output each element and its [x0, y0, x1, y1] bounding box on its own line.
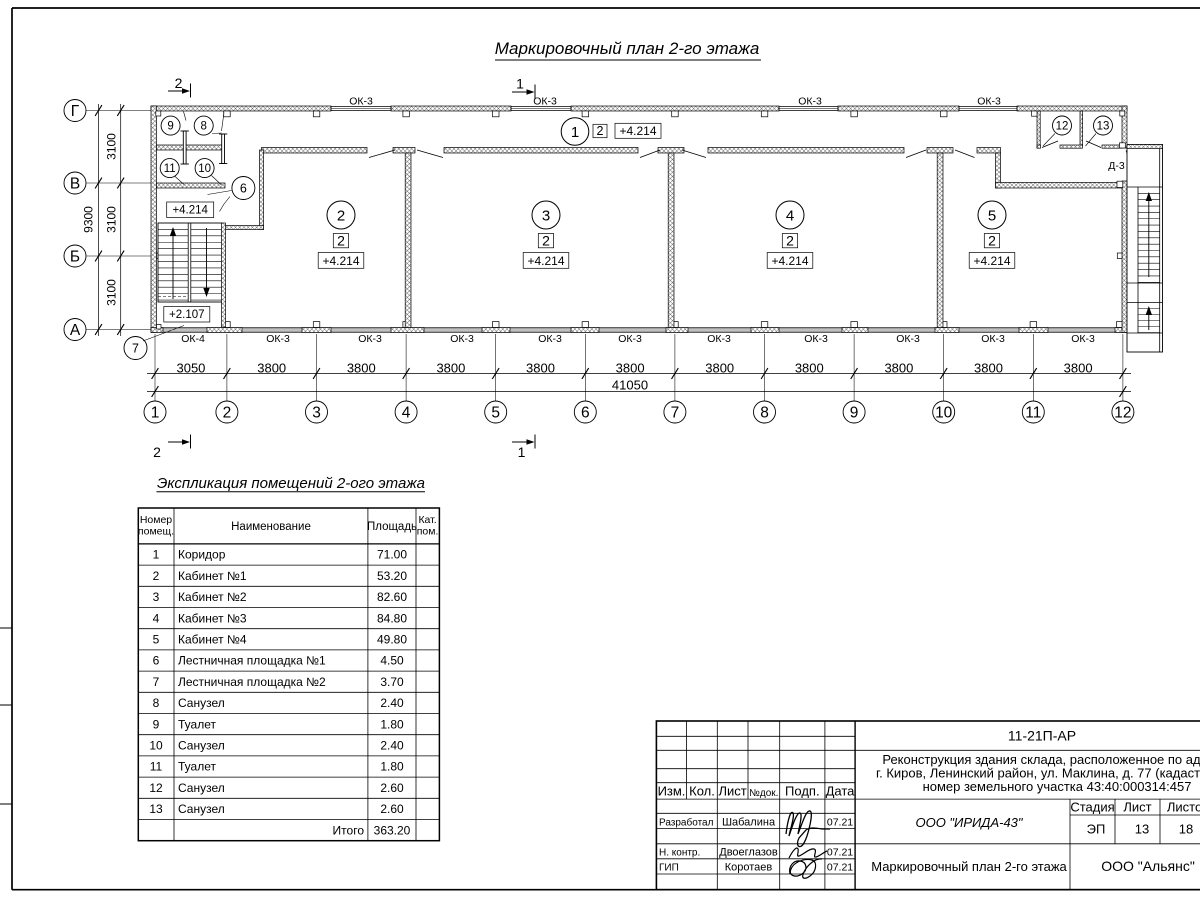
svg-text:ОК-3: ОК-3	[804, 333, 828, 345]
svg-text:1: 1	[516, 76, 524, 92]
svg-text:ОК-3: ОК-3	[533, 96, 557, 108]
svg-text:82.60: 82.60	[377, 590, 407, 604]
svg-text:84.80: 84.80	[377, 611, 407, 625]
svg-text:Номер: Номер	[140, 514, 172, 526]
svg-text:07.21: 07.21	[827, 861, 853, 873]
svg-text:Разработал: Разработал	[659, 817, 714, 829]
svg-text:07.21: 07.21	[827, 817, 853, 829]
svg-text:Кабинет №4: Кабинет №4	[178, 633, 247, 647]
svg-text:8: 8	[760, 404, 769, 421]
svg-text:Дата: Дата	[826, 783, 856, 798]
svg-text:4: 4	[786, 207, 794, 224]
svg-text:Санузел: Санузел	[178, 802, 225, 816]
svg-text:8: 8	[200, 121, 206, 133]
svg-text:3800: 3800	[705, 360, 734, 375]
svg-text:Итого: Итого	[333, 823, 365, 837]
svg-text:3800: 3800	[884, 360, 913, 375]
svg-text:Кат.: Кат.	[418, 514, 436, 526]
svg-text:+4.214: +4.214	[973, 254, 1010, 268]
svg-text:Туалет: Туалет	[178, 717, 216, 731]
svg-text:13: 13	[1097, 121, 1110, 133]
svg-text:+4.214: +4.214	[322, 254, 359, 268]
svg-text:Стадия: Стадия	[1070, 800, 1114, 815]
svg-text:ОК-3: ОК-3	[538, 333, 562, 345]
svg-text:В: В	[70, 175, 80, 192]
svg-text:ЭП: ЭП	[1087, 822, 1106, 837]
svg-text:Санузел: Санузел	[178, 739, 225, 753]
svg-text:363.20: 363.20	[374, 823, 411, 837]
svg-text:3: 3	[153, 590, 160, 604]
svg-text:11: 11	[1025, 404, 1041, 421]
svg-text:12: 12	[149, 781, 163, 795]
svg-text:5: 5	[988, 207, 996, 224]
svg-text:помещ.: помещ.	[138, 525, 174, 537]
svg-text:Д-3: Д-3	[1108, 160, 1125, 172]
svg-text:ОК-3: ОК-3	[450, 333, 474, 345]
svg-text:11: 11	[150, 760, 163, 774]
svg-text:+4.214: +4.214	[527, 254, 564, 268]
svg-text:ОК-3: ОК-3	[798, 96, 822, 108]
svg-text:3100: 3100	[105, 206, 119, 233]
svg-text:7: 7	[132, 341, 139, 355]
svg-text:2: 2	[786, 233, 794, 249]
svg-text:Кол.: Кол.	[689, 783, 715, 798]
svg-text:ООО "Альянс": ООО "Альянс"	[1101, 858, 1195, 874]
svg-text:Листов: Листов	[1167, 800, 1200, 815]
svg-text:ОК-4: ОК-4	[181, 333, 205, 345]
svg-text:Шабалина: Шабалина	[722, 817, 776, 829]
svg-text:6: 6	[240, 181, 247, 195]
svg-text:53.20: 53.20	[377, 569, 407, 583]
svg-text:Н. контр.: Н. контр.	[659, 847, 700, 858]
svg-text:2: 2	[597, 124, 604, 138]
svg-text:Площадь: Площадь	[367, 521, 417, 533]
svg-text:+4.214: +4.214	[771, 254, 808, 268]
svg-text:ОК-3: ОК-3	[896, 333, 920, 345]
svg-text:4: 4	[153, 611, 160, 625]
svg-text:3800: 3800	[347, 360, 376, 375]
svg-text:18: 18	[1179, 822, 1193, 837]
svg-text:Кабинет №3: Кабинет №3	[178, 611, 247, 625]
svg-text:2: 2	[542, 233, 550, 249]
svg-text:2: 2	[337, 233, 345, 249]
svg-text:2: 2	[988, 233, 996, 249]
svg-text:ОК-3: ОК-3	[977, 96, 1001, 108]
svg-text:2: 2	[153, 569, 160, 583]
svg-text:ОК-3: ОК-3	[1071, 333, 1095, 345]
svg-text:Лист: Лист	[718, 783, 746, 798]
svg-text:+2.107: +2.107	[169, 309, 205, 321]
svg-text:1: 1	[518, 444, 526, 460]
svg-text:1.80: 1.80	[380, 760, 404, 774]
svg-text:Кабинет №1: Кабинет №1	[178, 569, 247, 583]
svg-text:Кабинет №2: Кабинет №2	[178, 590, 247, 604]
svg-text:Г: Г	[71, 103, 80, 120]
svg-text:71.00: 71.00	[377, 548, 407, 562]
svg-text:3800: 3800	[257, 360, 286, 375]
svg-text:Двоеглазов: Двоеглазов	[719, 846, 778, 858]
svg-text:3.70: 3.70	[380, 675, 404, 689]
svg-text:9300: 9300	[82, 206, 96, 233]
svg-text:07.21: 07.21	[827, 846, 853, 858]
svg-text:9: 9	[850, 404, 859, 421]
svg-text:№док.: №док.	[749, 788, 778, 799]
svg-text:Лестничная площадка №2: Лестничная площадка №2	[178, 675, 326, 689]
svg-text:6: 6	[581, 404, 590, 421]
svg-text:3: 3	[312, 404, 321, 421]
svg-text:ОК-3: ОК-3	[349, 96, 373, 108]
svg-text:ГИП: ГИП	[659, 862, 679, 873]
svg-text:Коротаев: Коротаев	[725, 861, 773, 873]
svg-text:ОК-3: ОК-3	[618, 333, 642, 345]
svg-text:12: 12	[1114, 404, 1131, 421]
svg-text:Санузел: Санузел	[178, 781, 225, 795]
svg-text:4: 4	[402, 404, 411, 421]
svg-text:ООО "ИРИДА-43": ООО "ИРИДА-43"	[915, 815, 1023, 830]
svg-text:1: 1	[151, 404, 160, 421]
svg-text:А: А	[70, 322, 81, 339]
svg-text:3: 3	[542, 207, 550, 224]
svg-text:номер земельного участка 43:40: номер земельного участка 43:40:000314:45…	[923, 779, 1192, 794]
svg-text:3800: 3800	[795, 360, 824, 375]
svg-text:1: 1	[153, 548, 160, 562]
svg-text:Подп.: Подп.	[785, 783, 820, 798]
svg-text:11: 11	[164, 163, 176, 175]
svg-text:пом.: пом.	[417, 525, 439, 537]
svg-text:3800: 3800	[1064, 360, 1093, 375]
svg-text:Санузел: Санузел	[178, 696, 225, 710]
svg-text:Туалет: Туалет	[178, 760, 216, 774]
svg-text:6: 6	[153, 654, 160, 668]
svg-text:ОК-3: ОК-3	[266, 333, 290, 345]
svg-text:Изм.: Изм.	[658, 783, 686, 798]
svg-text:41050: 41050	[612, 377, 648, 392]
svg-text:Экспликация помещений 2-ого эт: Экспликация помещений 2-ого этажа	[157, 475, 425, 492]
svg-text:4.50: 4.50	[380, 654, 404, 668]
svg-text:+4.214: +4.214	[172, 205, 208, 217]
svg-text:2.40: 2.40	[380, 696, 404, 710]
svg-text:7: 7	[671, 404, 680, 421]
svg-text:1: 1	[571, 124, 579, 141]
svg-text:Коридор: Коридор	[178, 548, 226, 562]
svg-text:+4.214: +4.214	[619, 124, 656, 138]
svg-text:Маркировочный план 2-го этажа: Маркировочный план 2-го этажа	[495, 39, 760, 58]
svg-text:7: 7	[153, 675, 160, 689]
svg-text:9: 9	[153, 717, 160, 731]
svg-text:10: 10	[198, 163, 211, 175]
svg-text:49.80: 49.80	[377, 633, 407, 647]
svg-text:Б: Б	[70, 248, 80, 265]
svg-text:2: 2	[223, 404, 232, 421]
svg-text:2.40: 2.40	[380, 739, 404, 753]
svg-text:Наименование: Наименование	[231, 521, 311, 533]
svg-text:10: 10	[935, 404, 953, 421]
svg-text:13: 13	[1135, 822, 1149, 837]
svg-text:1.80: 1.80	[380, 717, 404, 731]
svg-text:2.60: 2.60	[380, 781, 404, 795]
svg-text:2: 2	[153, 444, 161, 460]
svg-text:3800: 3800	[616, 360, 645, 375]
svg-text:Лист: Лист	[1123, 800, 1151, 815]
svg-text:3800: 3800	[974, 360, 1003, 375]
svg-text:9: 9	[167, 121, 173, 133]
svg-text:3100: 3100	[105, 279, 119, 306]
svg-text:2.60: 2.60	[380, 802, 404, 816]
svg-text:5: 5	[153, 633, 160, 647]
svg-text:2: 2	[175, 75, 183, 91]
svg-text:3800: 3800	[526, 360, 555, 375]
svg-text:3100: 3100	[105, 133, 119, 160]
svg-text:ОК-3: ОК-3	[981, 333, 1005, 345]
svg-text:13: 13	[149, 802, 163, 816]
svg-text:8: 8	[153, 696, 160, 710]
svg-text:ОК-3: ОК-3	[358, 333, 382, 345]
svg-text:Маркировочный план 2-го этажа: Маркировочный план 2-го этажа	[871, 859, 1067, 874]
svg-text:2: 2	[337, 207, 345, 224]
svg-text:ОК-3: ОК-3	[707, 333, 731, 345]
svg-text:11-21П-АР: 11-21П-АР	[1008, 728, 1076, 744]
svg-text:Лестничная площадка №1: Лестничная площадка №1	[178, 654, 326, 668]
svg-text:10: 10	[149, 739, 163, 753]
svg-text:12: 12	[1056, 121, 1069, 133]
svg-text:5: 5	[491, 404, 500, 421]
svg-text:3800: 3800	[436, 360, 465, 375]
svg-text:3050: 3050	[176, 360, 205, 375]
